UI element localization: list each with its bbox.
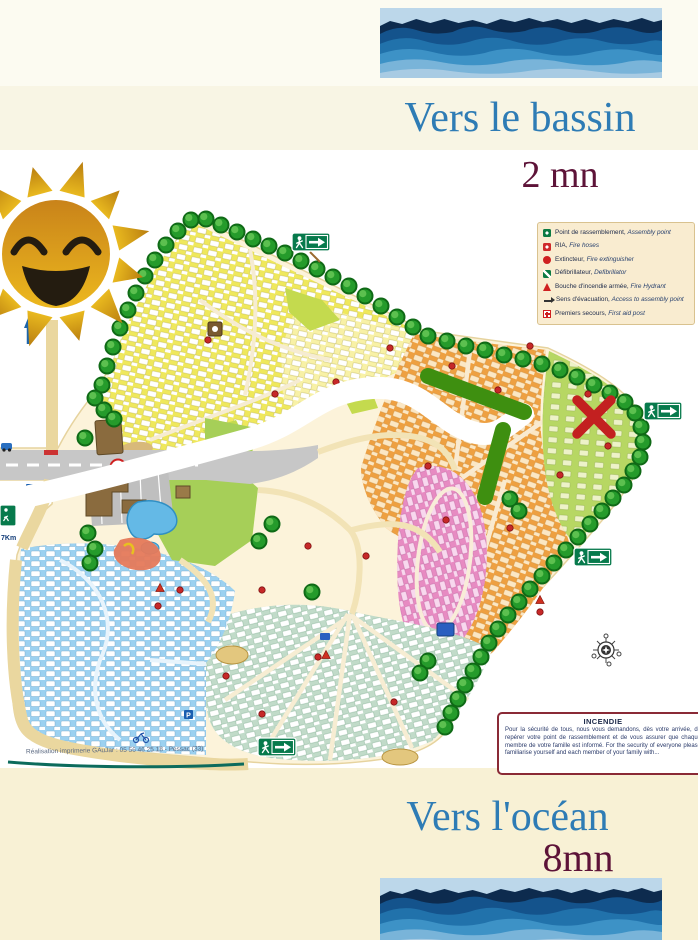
exit-sign-top xyxy=(292,233,330,251)
wave-bottom-image xyxy=(380,878,662,940)
assembly-point-icon xyxy=(543,229,551,237)
evacuation-arrow-icon xyxy=(544,300,551,302)
legend-item: Défibrillateur, Defibrillator xyxy=(543,270,689,278)
incendie-notice: INCENDIE Pour la sécurité de tous, nous … xyxy=(497,712,698,775)
legend-item: Bouche d'incendie armée, Fire Hydrant xyxy=(543,283,689,291)
header-destination-label: Vers le bassin xyxy=(370,94,670,142)
defibrillator-icon xyxy=(543,270,551,278)
legend-item: Point de rassemblement, Assembly point xyxy=(543,229,689,237)
legend-item: RIA, Fire hoses xyxy=(543,243,689,251)
distance-label: 7Km xyxy=(1,535,16,542)
fire-hose-icon xyxy=(543,243,551,251)
first-aid-icon xyxy=(543,310,551,318)
info-hut xyxy=(176,486,190,498)
wave-top-image xyxy=(380,8,662,78)
legend-item: Sens d'évacuation, Access to assembly po… xyxy=(543,297,689,305)
header-duration-label: 2 mn xyxy=(440,153,680,197)
exit-sign-right-lower xyxy=(574,548,612,566)
svg-text:P: P xyxy=(186,713,191,720)
incendie-title: INCENDIE xyxy=(505,717,698,726)
legend-item: Extincteur, Fire extinguisher xyxy=(543,256,689,264)
exit-sign-bottom xyxy=(258,738,296,756)
exit-sign-left xyxy=(0,505,16,526)
compass-rose xyxy=(592,634,621,666)
sanitary-block xyxy=(437,623,454,636)
playground xyxy=(216,646,248,664)
fire-hydrant-icon xyxy=(543,283,551,291)
fire-extinguisher-icon xyxy=(543,256,551,264)
incendie-body: Pour la sécurité de tous, nous vous dema… xyxy=(505,727,698,758)
legend-item: Premiers secours, First aid post xyxy=(543,310,689,318)
footer-duration-label: 8mn xyxy=(508,834,648,881)
page: Vers le bassin 2 mn xyxy=(0,0,698,940)
map-legend: Point de rassemblement, Assembly point R… xyxy=(537,222,695,325)
exit-sign-right-upper xyxy=(644,402,682,420)
sun-icon xyxy=(0,156,154,352)
